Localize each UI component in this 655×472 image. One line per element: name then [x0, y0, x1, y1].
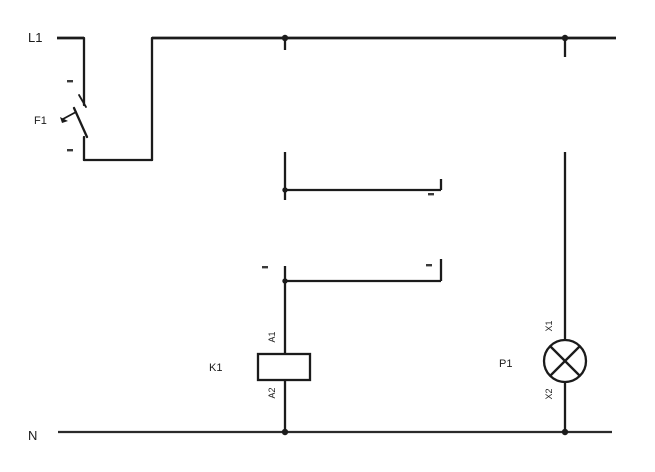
junction-dot — [562, 429, 568, 435]
junction-dot — [282, 429, 288, 435]
circuit-diagram: L1 N F1 — [0, 0, 655, 472]
lamp-terminal-x2-label: X2 — [544, 388, 554, 399]
schematic-svg: L1 N F1 — [0, 0, 655, 472]
n-rail-label: N — [28, 428, 37, 443]
lamp-symbol — [544, 340, 586, 382]
lamp-terminal-x1-label: X1 — [544, 320, 554, 331]
k1-label: K1 — [209, 362, 222, 374]
relay-coil-symbol — [258, 354, 310, 380]
holding-contact-loop-wires — [285, 179, 441, 281]
terminal-mark — [428, 193, 434, 195]
junction-dot — [562, 35, 568, 41]
junction-dots — [282, 35, 568, 435]
terminal-mark — [67, 80, 73, 82]
terminal-mark — [67, 149, 73, 151]
terminal-mark — [426, 264, 432, 266]
coil-terminal-a1-label: A1 — [267, 331, 277, 342]
junction-dot — [282, 187, 287, 192]
p1-label: P1 — [499, 358, 512, 370]
coil-terminal-a2-label: A2 — [267, 387, 277, 398]
junction-dot — [282, 35, 288, 41]
f1-label: F1 — [34, 115, 47, 127]
junction-dot — [282, 278, 287, 283]
breaker-f1-symbol — [60, 38, 152, 160]
l1-rail-label: L1 — [28, 30, 42, 45]
terminal-mark — [262, 266, 268, 268]
